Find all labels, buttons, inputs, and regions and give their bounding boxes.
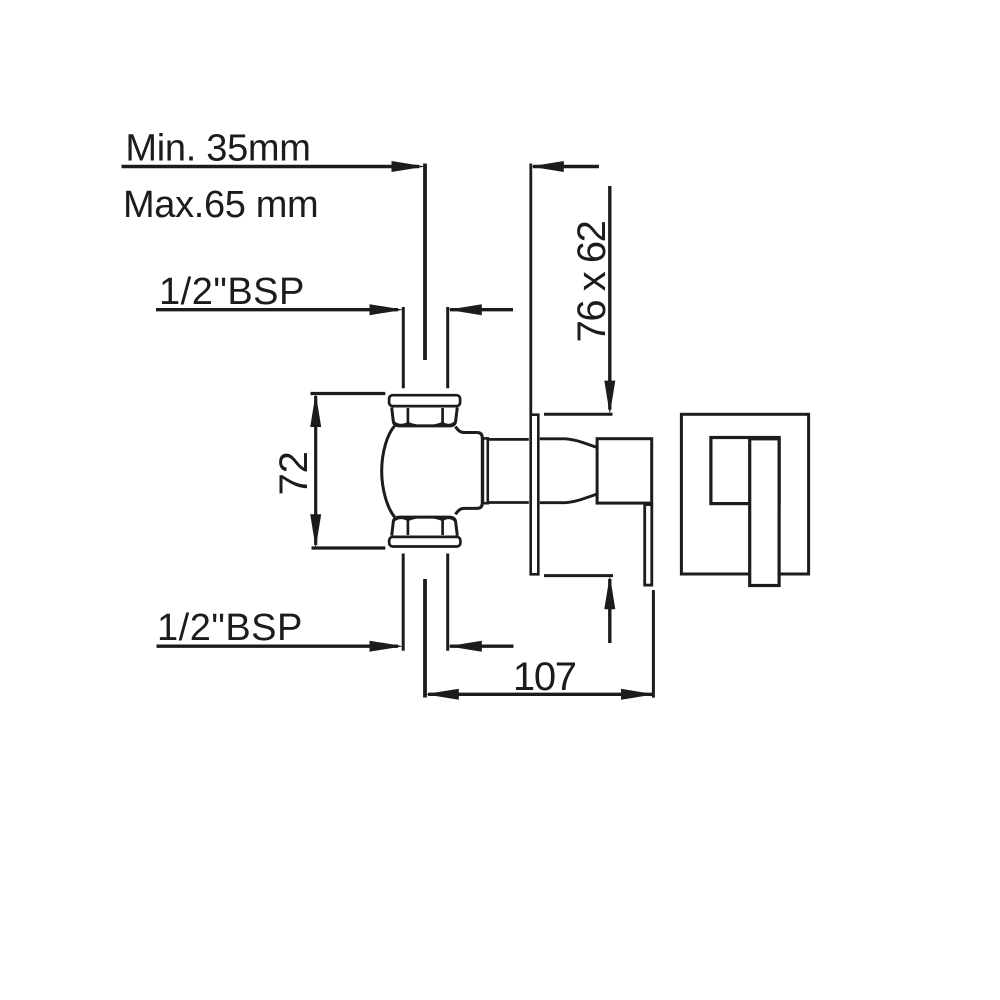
svg-text:72: 72 (272, 451, 316, 495)
svg-text:Min. 35mm: Min. 35mm (125, 128, 310, 170)
svg-text:76 x 62: 76 x 62 (570, 221, 614, 342)
svg-text:1/2"BSP: 1/2"BSP (157, 607, 303, 649)
svg-text:1/2"BSP: 1/2"BSP (159, 271, 305, 313)
svg-text:107: 107 (513, 655, 576, 699)
svg-text:Max.65 mm: Max.65 mm (123, 184, 318, 226)
